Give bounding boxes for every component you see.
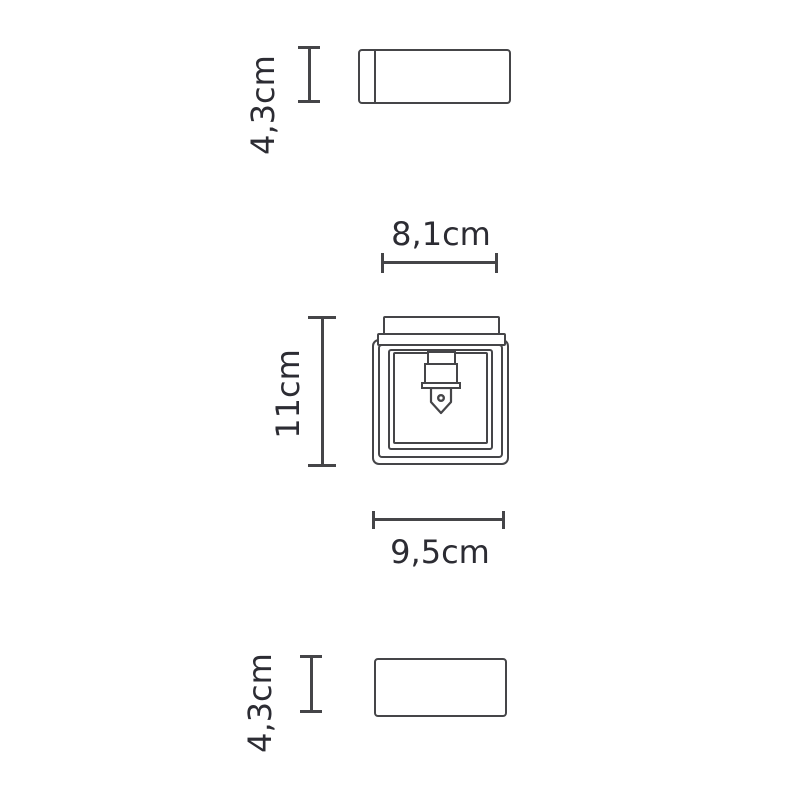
dim-line-vertical — [308, 48, 311, 102]
dim-label-body-width: 9,5cm — [390, 536, 490, 568]
dimension-diagram: 4,3cm 8,1cm 11cm — [0, 0, 800, 800]
dim-line-vertical — [321, 318, 324, 466]
socket-body — [424, 363, 458, 384]
bulb-holder-icon — [428, 386, 454, 416]
dim-label-canopy-width: 8,1cm — [391, 218, 491, 250]
dim-line-horizontal — [383, 261, 497, 264]
dim-line-vertical — [310, 657, 313, 712]
dim-label-top-height: 4,3cm — [247, 55, 279, 155]
dim-label-body-height: 11cm — [272, 349, 304, 438]
side-view-bottom-outline — [374, 658, 507, 717]
dim-cap-right — [495, 253, 498, 273]
dim-line-horizontal — [374, 518, 504, 521]
bulb-dot-icon — [438, 395, 444, 401]
socket-flange — [421, 382, 461, 389]
dim-cap-bottom — [298, 100, 320, 103]
dim-cap-bottom — [300, 710, 322, 713]
dim-label-bottom-height: 4,3cm — [244, 653, 276, 753]
side-view-top-edge-line — [374, 51, 376, 102]
dim-cap-bottom — [308, 464, 336, 467]
side-view-top-outline — [358, 49, 511, 104]
dim-cap-right — [502, 511, 505, 529]
canopy-plate — [383, 316, 500, 335]
